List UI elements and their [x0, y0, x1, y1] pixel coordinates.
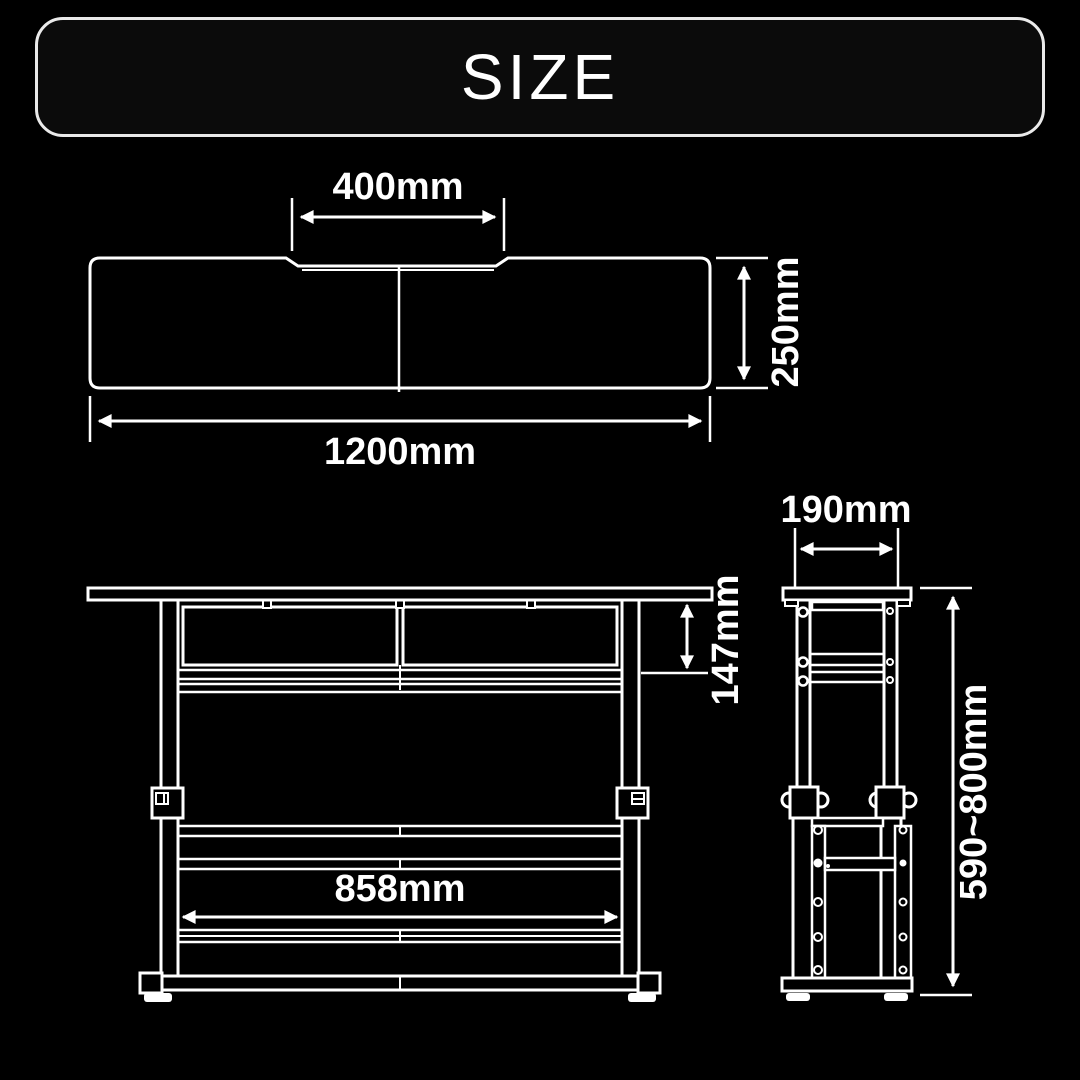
foot-end-box-left	[140, 973, 162, 993]
dimension-side-depth: 190mm	[781, 489, 912, 588]
dimension-total-width: 1200mm	[90, 396, 710, 473]
foot-pad-left	[144, 993, 172, 1002]
dim-label-notch-width: 400mm	[333, 166, 464, 208]
tabletop-side	[783, 588, 911, 600]
bolt	[900, 860, 907, 867]
foot-pad-right	[628, 993, 656, 1002]
mesh-panel-left	[183, 607, 397, 665]
tabletop-cap-right	[897, 600, 910, 606]
size-diagram-page: SIZE 400mm	[0, 0, 1080, 1080]
side-clamp-right	[870, 787, 916, 818]
panel-strip-right	[895, 826, 911, 978]
left-clamp	[152, 788, 183, 818]
mesh-panel-right	[403, 607, 617, 665]
upper-leg-left	[797, 600, 810, 790]
side-foot-pad-right	[884, 993, 908, 1001]
bolt	[826, 864, 830, 868]
dim-label-height-range: 590~800mm	[953, 684, 995, 901]
dimension-notch-width: 400mm	[292, 166, 504, 251]
dim-label-inner-width: 858mm	[335, 868, 466, 910]
clamp-body	[876, 787, 904, 818]
clamp-knob	[156, 793, 168, 804]
bolt	[814, 859, 823, 868]
tabletop-front	[88, 588, 712, 600]
side-foot-bar	[782, 978, 912, 991]
dim-label-panel-height: 147mm	[705, 575, 747, 706]
tabletop-cap-left	[785, 600, 798, 606]
dimension-height-range: 590~800mm	[920, 588, 995, 995]
dim-label-depth: 250mm	[765, 257, 807, 388]
panel-crossbar	[825, 858, 895, 870]
top-view: 400mm 250mm 1200mm	[90, 166, 807, 473]
dim-label-total-width: 1200mm	[324, 431, 476, 473]
foot-end-box-right	[638, 973, 660, 993]
lower-leg-left	[793, 817, 813, 978]
front-view: 147mm 858mm	[88, 575, 747, 1002]
dimension-inner-width: 858mm	[183, 868, 617, 917]
dim-label-side-depth: 190mm	[781, 489, 912, 531]
side-clamp-left	[782, 787, 828, 818]
crossbar-2	[810, 672, 884, 682]
crossbar-1	[810, 654, 884, 665]
dimension-depth: 250mm	[716, 257, 807, 388]
diagram-canvas: 400mm 250mm 1200mm	[0, 0, 1080, 1080]
side-foot-pad-left	[786, 993, 810, 1001]
right-clamp	[617, 788, 648, 818]
upper-leg-right	[884, 600, 897, 790]
clamp-body	[790, 787, 818, 818]
top-bracket	[812, 602, 883, 610]
side-view: 190mm	[781, 489, 995, 1001]
